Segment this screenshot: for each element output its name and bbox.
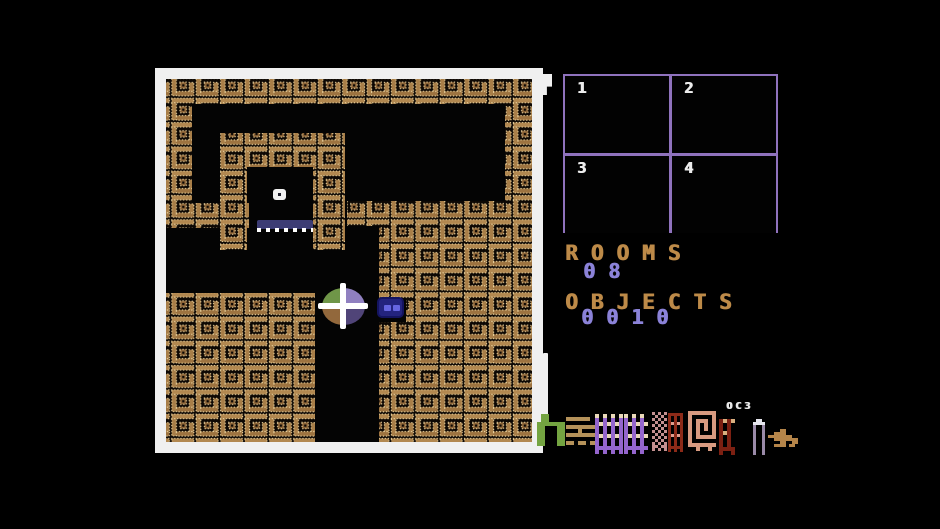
sprite-tan-sled-px: [780, 435, 783, 438]
sprite-salmon-spiral-px: [688, 427, 692, 431]
sprite-purple-cage-a-px: [599, 422, 603, 426]
sprite-red-cage-px: [727, 423, 731, 427]
sprite-red-bars-px: [671, 434, 674, 437]
sprite-salmon-spiral-px: [700, 419, 704, 423]
sprite-grey-arch-px: [753, 452, 756, 455]
sprite-grey-arch-px: [762, 440, 765, 443]
sprite-salmon-spiral-px: [700, 411, 704, 415]
sprite-mauve-dots-px: [658, 424, 661, 427]
sprite-purple-cage-b-px: [632, 450, 636, 454]
sprite-tan-sled-px: [777, 432, 780, 435]
sprite-purple-cage-b-px: [632, 418, 636, 422]
sprite-mauve-dots-px: [655, 421, 658, 424]
sprite-red-bars-px: [677, 413, 680, 416]
sprite-green-arch-px: [557, 434, 561, 438]
sprite-mauve-dots-px: [658, 436, 661, 439]
sprite-grey-arch-px: [756, 422, 759, 425]
sprite-tan-stack-px: [594, 441, 598, 445]
sprite-grey-arch-px: [753, 449, 756, 452]
sprite-red-bars-px: [674, 434, 677, 437]
sprite-tan-sled-px: [780, 429, 783, 432]
sprite-purple-cage-a-px: [611, 442, 615, 446]
sprite-purple-cage-a-px: [615, 422, 619, 426]
sprite-red-bars-px: [668, 419, 671, 422]
sprite-mauve-dots-px: [652, 436, 655, 439]
sprite-red-bars-px: [674, 443, 677, 446]
sprite-grey-arch-px: [762, 449, 765, 452]
sprite-purple-cage-a-px: [595, 442, 599, 446]
sprite-red-cage-px: [731, 451, 735, 455]
sprite-red-bars-px: [668, 440, 671, 443]
sprite-red-bars-px: [668, 416, 671, 419]
sprite-purple-cage-a-px: [595, 434, 599, 438]
sprite-grey-arch-px: [762, 452, 765, 455]
sprite-tan-sled-px: [780, 438, 783, 441]
sprite-red-bars-px: [680, 428, 683, 431]
marker-tab: [537, 74, 552, 104]
sprite-purple-cage-a-px: [619, 414, 623, 418]
sprite-mauve-dots-px: [652, 442, 655, 445]
sprite-tan-sled-px: [783, 438, 786, 441]
sprite-red-bars-px: [680, 434, 683, 437]
sprite-red-bars-px: [671, 446, 674, 449]
sprite-tan-sled-px: [783, 429, 786, 432]
sprite-purple-cage-b-px: [624, 438, 628, 442]
sprite-red-bars-px: [671, 422, 674, 425]
sprite-red-bars-px: [680, 443, 683, 446]
sprite-grey-arch-px: [759, 419, 762, 422]
sprite-grey-arch-px: [753, 437, 756, 440]
sprite-grey-arch-px: [762, 428, 765, 431]
sprite-purple-cage-a-px: [619, 430, 623, 434]
sprite-purple-cage-a-px: [615, 446, 619, 450]
sprite-red-bars-px: [668, 437, 671, 440]
sprite-mauve-dots-px: [652, 445, 655, 448]
sprite-red-cage-px: [719, 443, 723, 447]
sprite-tan-sled-px: [777, 435, 780, 438]
sprite-purple-cage-b-px: [624, 414, 628, 418]
sprite-salmon-spiral-px: [696, 423, 700, 427]
sprite-tan-sled-px: [783, 444, 786, 447]
sprite-salmon-spiral-px: [688, 435, 692, 439]
sprite-salmon-spiral-px: [696, 443, 700, 447]
sprite-purple-cage-a-px: [603, 442, 607, 446]
sprite-salmon-spiral-px: [704, 423, 708, 427]
sprite-tan-stack-px: [578, 433, 582, 437]
sprite-purple-cage-b-px: [640, 426, 644, 430]
sprite-mauve-dots-px: [661, 421, 664, 424]
sprite-grey-arch-px: [762, 443, 765, 446]
sprite-purple-cage-a-px: [595, 438, 599, 442]
sprite-tan-stack-px: [586, 433, 590, 437]
sprite-purple-cage-b-px: [640, 450, 644, 454]
sprite-grey-arch-px: [753, 434, 756, 437]
sprite-salmon-spiral-px: [712, 423, 716, 427]
sprite-tan-sled-px: [783, 441, 786, 444]
sprite-purple-cage-a-px: [603, 422, 607, 426]
sprite-green-arch-px: [561, 422, 565, 426]
sprite-purple-cage-a-px: [603, 418, 607, 422]
sprite-mauve-dots-px: [655, 427, 658, 430]
sprite-mauve-dots-px: [661, 433, 664, 436]
sprite-red-bars-px: [680, 422, 683, 425]
sprite-purple-cage-a-px: [595, 414, 599, 418]
sprite-purple-cage-b-px: [624, 442, 628, 446]
sprite-purple-cage-a-px: [611, 434, 615, 438]
sprite-red-bars-px: [668, 446, 671, 449]
sprite-red-bars-px: [674, 419, 677, 422]
minimap-cell-3-label: 3: [577, 159, 586, 177]
sprite-salmon-spiral-px: [696, 431, 700, 435]
sprite-purple-cage-b-px: [640, 414, 644, 418]
creature-eye-right: [393, 305, 400, 311]
sprite-tan-sled-px: [780, 432, 783, 435]
minimap-cell-4-label: 4: [684, 159, 693, 177]
sprite-tan-sled-px: [774, 444, 777, 447]
sprite-salmon-spiral-px: [688, 411, 692, 415]
sprite-tan-stack-px: [570, 425, 574, 429]
sprite-salmon-spiral-px: [688, 443, 692, 447]
sprite-grey-arch-px: [753, 425, 756, 428]
sprite-grey-arch-px: [756, 419, 759, 422]
sprite-purple-cage-a-px: [595, 450, 599, 454]
sprite-purple-cage-a-px: [619, 438, 623, 442]
sprite-mauve-dots-px: [664, 430, 667, 433]
sprite-purple-cage-b-px: [640, 430, 644, 434]
sprite-tan-sled-px: [777, 444, 780, 447]
sprite-tan-sled-px: [792, 438, 795, 441]
sprite-green-arch-px: [557, 442, 561, 446]
minimap-cell-1-label: 1: [577, 79, 586, 97]
sprite-tan-stack-px: [570, 433, 574, 437]
sprite-purple-cage-b-px: [640, 434, 644, 438]
sprite-purple-cage-b-px: [636, 422, 640, 426]
sprite-purple-cage-b-px: [640, 438, 644, 442]
sprite-tan-sled-px: [786, 435, 789, 438]
sprite-red-cage-px: [719, 423, 723, 427]
sprite-purple-cage-b-px: [640, 422, 644, 426]
sprite-red-cage-px: [723, 431, 727, 435]
sprite-tan-sled-px: [783, 435, 786, 438]
sprite-red-bars-px: [680, 413, 683, 416]
sprite-salmon-spiral-px: [688, 419, 692, 423]
sprite-mauve-dots-px: [655, 445, 658, 448]
sprite-tan-sled-px: [780, 444, 783, 447]
object-code-text: OC3: [726, 401, 753, 412]
sprite-salmon-spiral-px: [696, 419, 700, 423]
ball-quadrant-dark: [344, 307, 366, 326]
sprite-red-bars-px: [671, 413, 674, 416]
sprite-salmon-spiral-px: [712, 419, 716, 423]
sprite-mauve-dots-px: [664, 418, 667, 421]
sprite-red-bars-px: [680, 419, 683, 422]
sprite-purple-cage-b-px: [640, 442, 644, 446]
sprite-red-bars-px: [668, 428, 671, 431]
sprite-salmon-spiral-px: [704, 419, 708, 423]
sprite-purple-cage-a-px: [595, 426, 599, 430]
sprite-red-cage-px: [719, 447, 723, 451]
sprite-red-bars-px: [677, 446, 680, 449]
sprite-tan-sled-px: [771, 435, 774, 438]
minimap-cell-2-label: 2: [684, 79, 693, 97]
room-object-dot: [273, 189, 286, 200]
sprite-purple-cage-a-px: [603, 434, 607, 438]
sprite-green-arch-px: [561, 438, 565, 442]
sprite-salmon-spiral-px: [704, 443, 708, 447]
sprite-red-bars-px: [674, 413, 677, 416]
sprite-green-arch-px: [561, 426, 565, 430]
sprite-tan-stack-px: [586, 417, 590, 421]
room-object-dot-hole: [278, 193, 281, 196]
playfield[interactable]: [155, 68, 543, 453]
sprite-tan-stack-px: [570, 441, 574, 445]
sprite-green-arch-px: [545, 422, 549, 426]
sprite-red-bars-px: [674, 416, 677, 419]
sprite-tan-stack-px: [582, 425, 586, 429]
sprite-green-arch-px: [561, 442, 565, 446]
sprite-grey-arch-px: [762, 446, 765, 449]
sprite-grey-arch-px: [753, 422, 756, 425]
sprite-purple-cage-a-px: [611, 450, 615, 454]
sprite-salmon-spiral-px: [704, 427, 708, 431]
sprite-green-arch-px: [557, 426, 561, 430]
sprite-purple-cage-b-px: [628, 434, 632, 438]
sprite-red-cage-px: [719, 439, 723, 443]
sprite-red-bars-px: [674, 431, 677, 434]
sprite-purple-cage-a-px: [611, 426, 615, 430]
sprite-tan-stack-px: [570, 417, 574, 421]
sprite-tan-stack-px: [574, 433, 578, 437]
sprite-salmon-spiral-px: [688, 423, 692, 427]
sprite-purple-cage-a-px: [619, 442, 623, 446]
sprite-purple-cage-a-px: [595, 430, 599, 434]
sprite-red-bars-px: [680, 416, 683, 419]
room-minimap: 1 2 3 4: [563, 74, 778, 233]
sprite-salmon-spiral-px: [692, 411, 696, 415]
sprite-mauve-dots-px: [664, 412, 667, 415]
sprite-red-cage-px: [727, 419, 731, 423]
sprite-purple-cage-a-px: [615, 434, 619, 438]
sprite-tan-stack-px: [582, 441, 586, 445]
sprite-purple-cage-a-px: [595, 422, 599, 426]
sprite-purple-cage-b-px: [624, 422, 628, 426]
sprite-mauve-dots-px: [664, 442, 667, 445]
sprite-red-cage-px: [731, 447, 735, 451]
sprite-purple-cage-b-px: [632, 438, 636, 442]
sprite-red-bars-px: [668, 431, 671, 434]
sprite-green-arch-px: [561, 430, 565, 434]
sprite-tan-stack-px: [582, 417, 586, 421]
sprite-red-bars-px: [680, 449, 683, 452]
sprite-purple-cage-b-px: [640, 418, 644, 422]
sprite-purple-cage-a-px: [611, 438, 615, 442]
sprite-mauve-dots-px: [652, 418, 655, 421]
sprite-red-bars-px: [677, 434, 680, 437]
sprite-grey-arch-px: [759, 422, 762, 425]
sprite-red-bars-px: [680, 437, 683, 440]
sprite-mauve-dots-px: [655, 433, 658, 436]
sprite-red-bars-px: [668, 425, 671, 428]
sprite-purple-cage-b-px: [632, 426, 636, 430]
sprite-mauve-dots-px: [661, 427, 664, 430]
sprite-tan-sled-px: [795, 438, 798, 441]
ball-cross-horizontal: [318, 303, 368, 309]
sprite-tan-sled-px: [789, 438, 792, 441]
sprite-salmon-spiral-px: [712, 415, 716, 419]
sprite-tan-sled-px: [792, 444, 795, 447]
creature-eye-left: [384, 305, 391, 311]
sprite-tan-stack-px: [594, 425, 598, 429]
sprite-purple-cage-b-px: [624, 446, 628, 450]
sprite-mauve-dots-px: [652, 430, 655, 433]
sprite-red-cage-px: [727, 435, 731, 439]
sprite-red-bars-px: [668, 434, 671, 437]
sprite-tan-stack-px: [578, 425, 582, 429]
sprite-purple-cage-b-px: [624, 418, 628, 422]
sprite-tan-stack-px: [566, 417, 570, 421]
sprite-purple-cage-a-px: [603, 450, 607, 454]
sprite-tan-stack-px: [574, 417, 578, 421]
rooms-count: 08: [583, 261, 633, 281]
sprite-tan-sled-px: [774, 438, 777, 441]
sprite-tan-sled-px: [789, 444, 792, 447]
sprite-red-bars-px: [668, 449, 671, 452]
sprite-purple-cage-b-px: [632, 434, 636, 438]
sprite-tan-stack-px: [574, 425, 578, 429]
sprite-mauve-dots-px: [661, 439, 664, 442]
sprite-green-arch-px: [557, 438, 561, 442]
sprite-red-cage-px: [719, 419, 723, 423]
sprite-red-cage-px: [719, 427, 723, 431]
sprite-salmon-spiral-px: [688, 439, 692, 443]
sprite-purple-cage-b-px: [636, 434, 640, 438]
sprite-purple-cage-b-px: [624, 430, 628, 434]
sprite-tan-stack-px: [566, 441, 570, 445]
sprite-tan-stack-px: [578, 417, 582, 421]
objects-count: 0010: [581, 307, 681, 327]
sprite-grey-arch-px: [762, 431, 765, 434]
sprite-purple-cage-a-px: [619, 418, 623, 422]
sprite-tan-sled-px: [768, 435, 771, 438]
sprite-salmon-spiral-px: [696, 435, 700, 439]
sprite-purple-cage-a-px: [603, 438, 607, 442]
sprite-purple-cage-a-px: [607, 422, 611, 426]
sprite-salmon-spiral-px: [704, 411, 708, 415]
minimap-cell-2[interactable]: 2: [672, 76, 776, 153]
minimap-cell-1[interactable]: 1: [565, 76, 669, 153]
sprite-grey-arch-px: [753, 440, 756, 443]
sprite-grey-arch-px: [762, 434, 765, 437]
sprite-purple-cage-b-px: [632, 442, 636, 446]
sprite-tan-stack-px: [566, 433, 570, 437]
sprite-tan-sled-px: [780, 441, 783, 444]
sprite-purple-cage-a-px: [619, 450, 623, 454]
sprite-tan-sled-px: [774, 432, 777, 435]
sprite-purple-cage-a-px: [611, 422, 615, 426]
sprite-red-bars-px: [674, 422, 677, 425]
sprite-red-bars-px: [674, 428, 677, 431]
sprite-mauve-dots-px: [661, 415, 664, 418]
sprite-green-arch-px: [545, 418, 549, 422]
sprite-purple-cage-b-px: [624, 426, 628, 430]
sprite-purple-cage-a-px: [595, 418, 599, 422]
sprite-red-bars-px: [674, 425, 677, 428]
sprite-purple-cage-a-px: [611, 430, 615, 434]
sprite-mauve-dots-px: [652, 412, 655, 415]
sprite-purple-cage-a-px: [603, 414, 607, 418]
sprite-red-bars-px: [680, 440, 683, 443]
sprite-salmon-spiral-px: [700, 435, 704, 439]
sprite-mauve-dots-px: [658, 430, 661, 433]
sprite-red-cage-px: [727, 439, 731, 443]
sprite-mauve-dots-px: [652, 448, 655, 451]
sprite-purple-cage-b-px: [644, 446, 648, 450]
sprite-mauve-dots-px: [661, 445, 664, 448]
sprite-purple-cage-b-px: [644, 434, 648, 438]
sprite-salmon-spiral-px: [712, 411, 716, 415]
sprite-red-cage-px: [727, 443, 731, 447]
sprite-red-bars-px: [674, 449, 677, 452]
minimap-cell-4[interactable]: 4: [672, 156, 776, 233]
sprite-salmon-spiral-px: [700, 443, 704, 447]
sprite-tan-sled-px: [795, 441, 798, 444]
sprite-salmon-spiral-px: [696, 411, 700, 415]
sprite-mauve-dots-px: [664, 436, 667, 439]
sprite-salmon-spiral-px: [696, 427, 700, 431]
sprite-salmon-spiral-px: [712, 431, 716, 435]
sprite-tan-sled-px: [783, 432, 786, 435]
room-platform-dashes: [257, 228, 313, 232]
sprite-salmon-spiral-px: [712, 427, 716, 431]
cursor-line: [543, 353, 548, 417]
sprite-mauve-dots-px: [664, 445, 667, 448]
sprite-salmon-spiral-px: [696, 447, 700, 451]
sprite-purple-cage-a-px: [603, 430, 607, 434]
sprite-grey-arch-px: [753, 443, 756, 446]
sprite-tan-stack-px: [566, 425, 570, 429]
sprite-salmon-spiral-px: [708, 447, 712, 451]
sprite-grey-arch-px: [762, 425, 765, 428]
sprite-red-bars-px: [668, 422, 671, 425]
sprite-mauve-dots-px: [664, 424, 667, 427]
sprite-purple-cage-a-px: [611, 446, 615, 450]
sprite-salmon-spiral-px: [712, 443, 716, 447]
sprite-salmon-spiral-px: [688, 431, 692, 435]
sprite-grey-arch-px: [753, 431, 756, 434]
sprite-red-bars-px: [680, 425, 683, 428]
sprite-mauve-dots-px: [655, 439, 658, 442]
sprite-purple-cage-b-px: [628, 446, 632, 450]
sprite-grey-arch-px: [753, 446, 756, 449]
minimap-cell-3[interactable]: 3: [565, 156, 669, 233]
sprite-purple-cage-a-px: [619, 434, 623, 438]
sprite-tan-stack-px: [590, 441, 594, 445]
sprite-purple-cage-a-px: [619, 446, 623, 450]
sprite-grey-arch-px: [753, 428, 756, 431]
sprite-grey-arch-px: [762, 422, 765, 425]
sprite-mauve-dots-px: [658, 448, 661, 451]
sprite-purple-cage-a-px: [607, 446, 611, 450]
sprite-tan-stack-px: [590, 425, 594, 429]
sprite-green-arch-px: [553, 422, 557, 426]
sprite-salmon-spiral-px: [708, 411, 712, 415]
player-ball-sprite[interactable]: [318, 283, 368, 329]
sprite-mauve-dots-px: [658, 412, 661, 415]
sprite-purple-cage-a-px: [603, 446, 607, 450]
sprite-tan-sled-px: [774, 435, 777, 438]
sprite-red-cage-px: [727, 431, 731, 435]
sprite-purple-cage-a-px: [611, 414, 615, 418]
